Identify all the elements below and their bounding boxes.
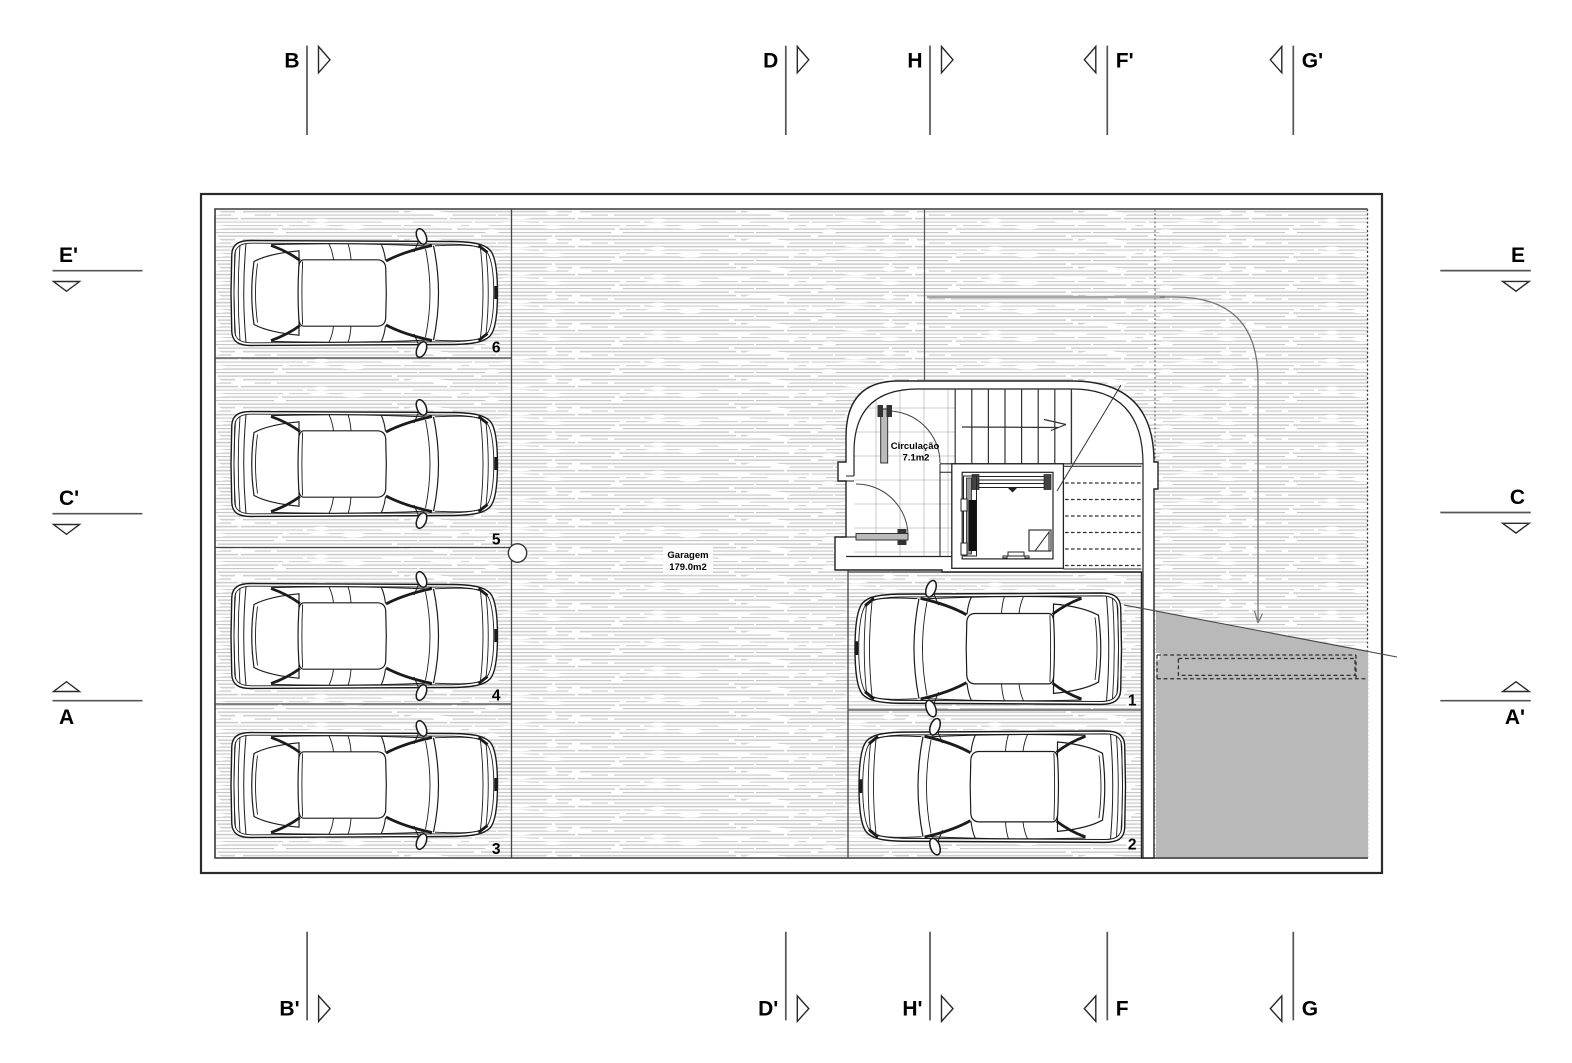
svg-text:2: 2 [1128, 837, 1137, 854]
svg-text:A: A [59, 706, 74, 729]
svg-text:E': E' [59, 244, 78, 267]
svg-text:C: C [1510, 486, 1525, 509]
svg-text:B: B [284, 50, 299, 73]
svg-text:5: 5 [492, 532, 501, 549]
svg-text:Circulação: Circulação [891, 441, 940, 452]
svg-text:7.1m2: 7.1m2 [903, 453, 930, 464]
svg-text:A': A' [1505, 706, 1525, 729]
svg-text:F': F' [1116, 50, 1134, 73]
svg-text:179.0m2: 179.0m2 [669, 562, 707, 573]
svg-text:6: 6 [492, 340, 501, 357]
svg-text:Garagem: Garagem [667, 550, 708, 561]
svg-text:4: 4 [492, 688, 501, 705]
svg-text:D: D [763, 50, 778, 73]
svg-text:G': G' [1302, 50, 1323, 73]
svg-text:D': D' [758, 998, 778, 1021]
svg-text:E: E [1511, 244, 1525, 267]
svg-text:F: F [1116, 998, 1129, 1021]
svg-text:G: G [1302, 998, 1318, 1021]
svg-text:H: H [907, 50, 922, 73]
svg-text:B': B' [279, 998, 299, 1021]
svg-text:C': C' [59, 487, 79, 510]
svg-text:1: 1 [1128, 693, 1137, 710]
svg-text:H': H' [902, 998, 922, 1021]
svg-text:3: 3 [492, 841, 501, 858]
